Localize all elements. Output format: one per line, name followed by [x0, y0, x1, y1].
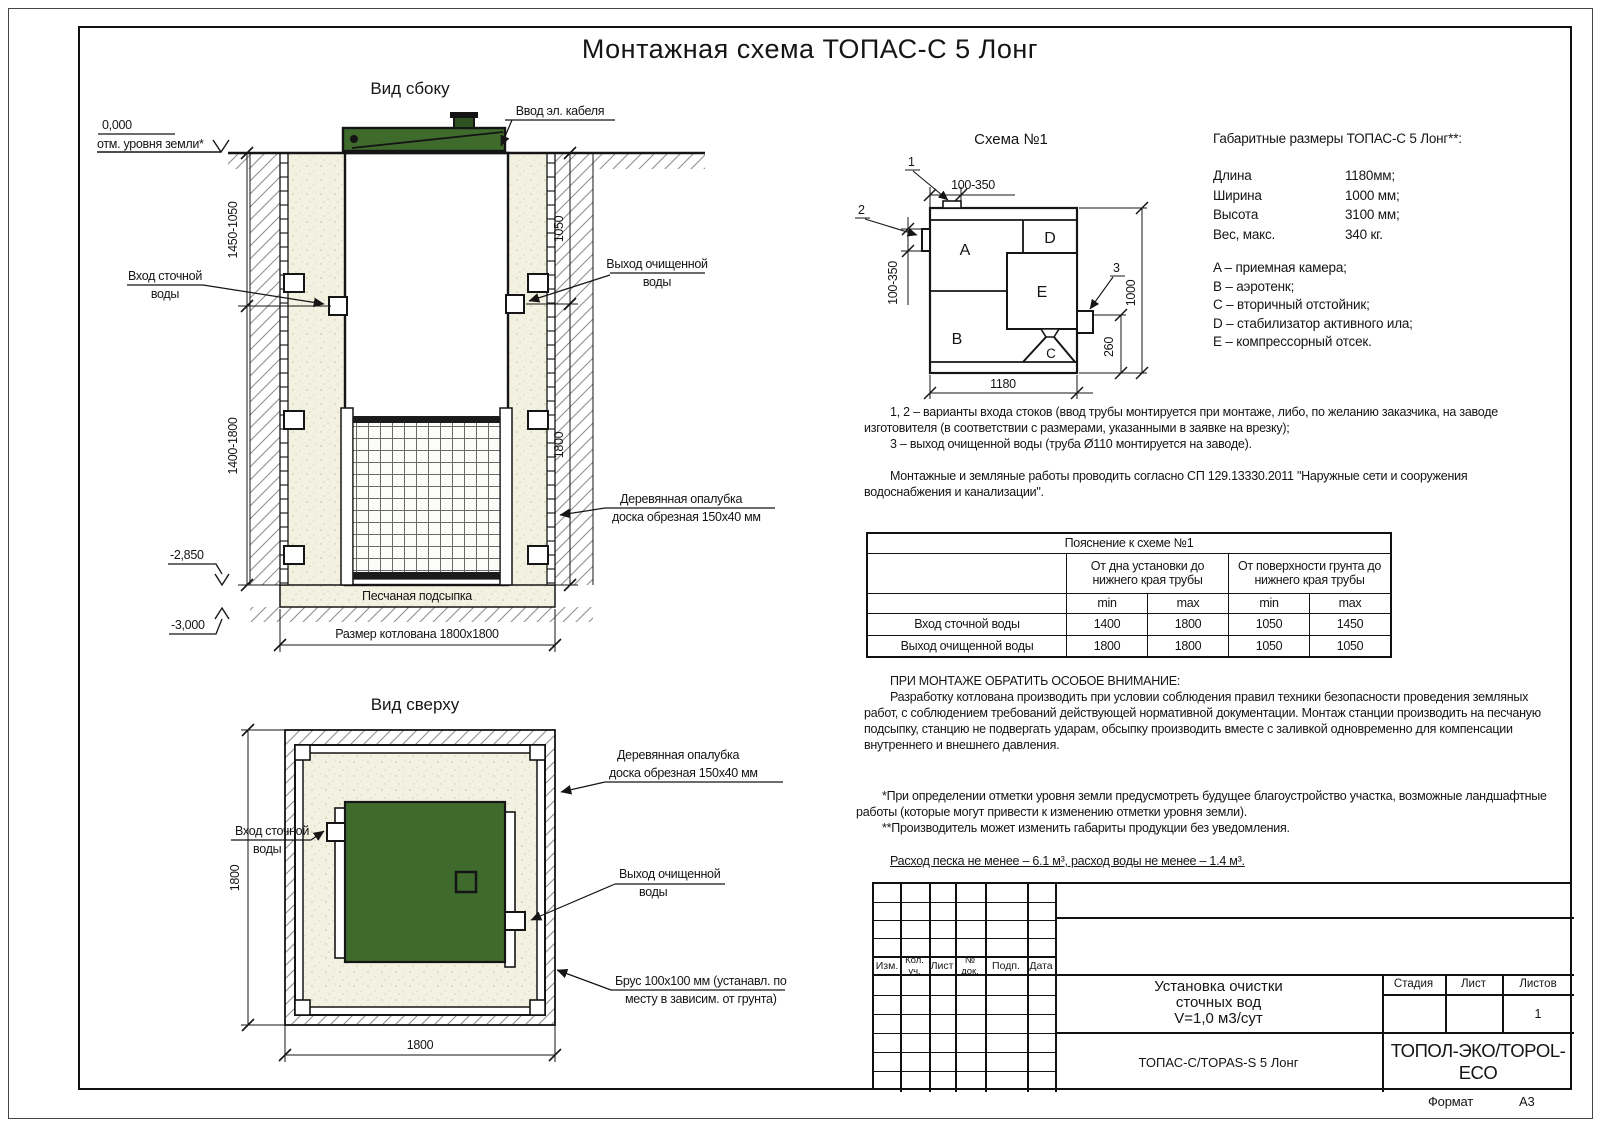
attention-body: Разработку котлована производить при усл…: [864, 689, 1556, 753]
svg-text:Деревянная опалубка: Деревянная опалубка: [620, 492, 742, 506]
note-outlet: 3 – выход очищенной воды (труба Ø110 мон…: [864, 436, 1554, 452]
svg-text:воды: воды: [151, 287, 180, 301]
formwork-board-left: [280, 153, 288, 585]
svg-text:воды: воды: [253, 842, 282, 856]
spec-row: Высота3100 мм;: [1213, 205, 1558, 225]
specs-heading: Габаритные размеры ТОПАС-С 5 Лонг**:: [1213, 131, 1558, 146]
tank-crate: [341, 408, 512, 585]
dim-height-label: 1800: [228, 864, 242, 891]
vent-hatch: [456, 872, 476, 892]
inlet-stub: [329, 297, 347, 315]
rev-col-izm: Изм.: [874, 956, 900, 976]
sand-bedding-label: Песчаная подсыпка: [362, 589, 472, 603]
svg-text:1: 1: [908, 155, 915, 169]
product-title: Установка очистки сточных вод V=1,0 м3/с…: [1055, 974, 1382, 1032]
schema-dim-left: [901, 217, 922, 305]
top-view-title: Вид сверху: [371, 695, 460, 714]
compartment-d: D: [1044, 230, 1056, 247]
compartment-a: A: [960, 242, 971, 259]
table-row: Выход очищенной воды 1800 1800 1050 1050: [867, 635, 1391, 657]
svg-text:-2,850: -2,850: [170, 548, 204, 562]
table-caption: Пояснение к схеме №1: [867, 533, 1391, 553]
side-view-title: Вид сбоку: [370, 79, 450, 98]
tank-lid: [343, 128, 505, 151]
schema1-title: Схема №1: [974, 131, 1048, 148]
rev-col-data: Дата: [1027, 956, 1055, 976]
schema-outlet-box: [1077, 311, 1093, 333]
elevation-2850: -2,850: [168, 548, 229, 585]
spec-row: Вес, макс.340 кг.: [1213, 225, 1558, 245]
cable-label: Ввод эл. кабеля: [501, 104, 615, 146]
compartment-b: B: [952, 331, 963, 348]
outlet-label-top: Выход очищенной воды: [531, 867, 725, 920]
specs-block: Габаритные размеры ТОПАС-С 5 Лонг**: Дли…: [1213, 131, 1558, 352]
schema-inlet-top: [943, 201, 961, 208]
svg-text:воды: воды: [639, 885, 668, 899]
beam-label-top: Брус 100х100 мм (устанавл. по месту в за…: [557, 970, 787, 1006]
unit-top: [345, 802, 505, 962]
footnote-1: *При определении отметки уровня земли пр…: [856, 788, 1556, 820]
col-group-2: От поверхности грунта до нижнего края тр…: [1229, 553, 1392, 593]
svg-text:Брус 100х100 мм (устанавл. по: Брус 100х100 мм (устанавл. по: [615, 974, 787, 988]
consumption-note: Расход песка не менее – 6.1 м³, расход в…: [890, 853, 1245, 869]
sheet-label: Лист: [1445, 974, 1502, 994]
spec-row: Ширина1000 мм;: [1213, 186, 1558, 206]
svg-text:доска обрезная 150х40 мм: доска обрезная 150х40 мм: [612, 510, 761, 524]
schema-dim-outlet-label: 260: [1102, 337, 1116, 357]
compartment-legend: A – приемная камера; B – аэротенк; C – в…: [1213, 259, 1558, 352]
dim-right-bottom: 1800: [552, 431, 566, 458]
title-block: Изм. Кол. уч. Лист № док. Подп. Дата Уст…: [872, 882, 1572, 1090]
outlet-stub-top: [505, 912, 525, 930]
outlet-stub: [506, 295, 524, 313]
format-value: А3: [1519, 1094, 1535, 1109]
footnotes-block: *При определении отметки уровня земли пр…: [856, 788, 1556, 836]
rail-right: [505, 812, 515, 967]
svg-text:Ввод эл. кабеля: Ввод эл. кабеля: [516, 104, 604, 118]
stage-label: Стадия: [1382, 974, 1445, 994]
note-regulations: Монтажные и земляные работы проводить со…: [864, 468, 1554, 500]
rev-col-podp: Подп.: [985, 956, 1027, 976]
col-group-1: От дна установки до нижнего края трубы: [1067, 553, 1229, 593]
footnote-2: **Производитель может изменить габариты …: [856, 820, 1556, 836]
svg-text:воды: воды: [643, 275, 672, 289]
compartment-c: C: [1046, 346, 1056, 361]
attention-block: ПРИ МОНТАЖЕ ОБРАТИТЬ ОСОБОЕ ВНИМАНИЕ: Ра…: [864, 673, 1556, 753]
svg-text:Выход очищенной: Выход очищенной: [619, 867, 721, 881]
inlet-stub-top: [327, 823, 345, 841]
sheets-label: Листов: [1502, 974, 1574, 994]
format-label: Формат: [1428, 1094, 1473, 1109]
svg-text:0,000: 0,000: [102, 118, 132, 132]
dim-left-bottom: 1400-1800: [226, 417, 240, 474]
schema-dim-left-label: 100-350: [886, 261, 900, 305]
table-row: Вход сточной воды 1400 1800 1050 1450: [867, 613, 1391, 635]
rev-col-koluch: Кол. уч.: [900, 956, 929, 976]
notes-block: 1, 2 – варианты входа стоков (ввод трубы…: [864, 404, 1554, 500]
svg-text:Деревянная опалубка: Деревянная опалубка: [617, 748, 739, 762]
svg-text:Выход очищенной: Выход очищенной: [606, 257, 708, 271]
dim-width-label: 1800: [407, 1038, 434, 1052]
company-name: ТОПОЛ-ЭКО/TOPOL-ECO: [1382, 1032, 1574, 1092]
svg-text:2: 2: [858, 203, 865, 217]
elevation-3000: -3,000: [169, 608, 229, 634]
side-view-drawing: Вид сбоку: [80, 78, 792, 663]
svg-text:отм. уровня земли*: отм. уровня земли*: [97, 137, 204, 151]
schema-dim-top-label: 100-350: [951, 178, 995, 192]
schema-dim-bottom-label: 1180: [990, 377, 1016, 391]
rev-col-list: Лист: [929, 956, 955, 976]
pit-size-label: Размер котлована 1800х1800: [335, 627, 499, 641]
svg-text:Вход сточной: Вход сточной: [235, 824, 309, 838]
schema-inlet-left: [922, 229, 930, 251]
svg-text:доска обрезная 150х40 мм: доска обрезная 150х40 мм: [609, 766, 758, 780]
dim-right-top: 1050: [552, 215, 566, 242]
note-variants: 1, 2 – варианты входа стоков (ввод трубы…: [864, 404, 1554, 436]
explanation-table: Пояснение к схеме №1 От дна установки до…: [866, 532, 1392, 658]
dim-left-top: 1450-1050: [226, 201, 240, 258]
drawing-title: Монтажная схема ТОПАС-С 5 Лонг: [450, 34, 1170, 65]
schema1-drawing: Схема №1 A B C D E 1 2 3 100-350: [845, 125, 1165, 420]
vent-pipe: [450, 112, 478, 128]
attention-heading: ПРИ МОНТАЖЕ ОБРАТИТЬ ОСОБОЕ ВНИМАНИЕ:: [864, 673, 1556, 689]
compartment-e: E: [1037, 284, 1048, 301]
spec-row: Длина1180мм;: [1213, 166, 1558, 186]
top-view-drawing: Вид сверху 1800 1800 Вход сточной воды Д…: [225, 688, 815, 1083]
elevation-zero: 0,000 отм. уровня земли*: [97, 118, 229, 152]
schema-dim-right-label: 1000: [1124, 279, 1138, 306]
formwork-label-top: Деревянная опалубка доска обрезная 150х4…: [561, 748, 783, 792]
svg-text:-3,000: -3,000: [171, 618, 205, 632]
callout-1: 1: [905, 155, 948, 200]
rev-col-ndok: № док.: [955, 956, 985, 976]
svg-text:3: 3: [1113, 261, 1120, 275]
model-name: ТОПАС-С/TOPAS-S 5 Лонг: [1055, 1032, 1382, 1092]
svg-text:Вход сточной: Вход сточной: [128, 269, 202, 283]
dim-height: [241, 724, 285, 1031]
sheets-value: 1: [1502, 995, 1574, 1032]
callout-3: 3: [1090, 261, 1125, 309]
svg-text:месту в зависим. от грунта): месту в зависим. от грунта): [625, 992, 777, 1006]
drawing-sheet: { "sheet": { "title": "Монтажная схема Т…: [0, 0, 1600, 1131]
